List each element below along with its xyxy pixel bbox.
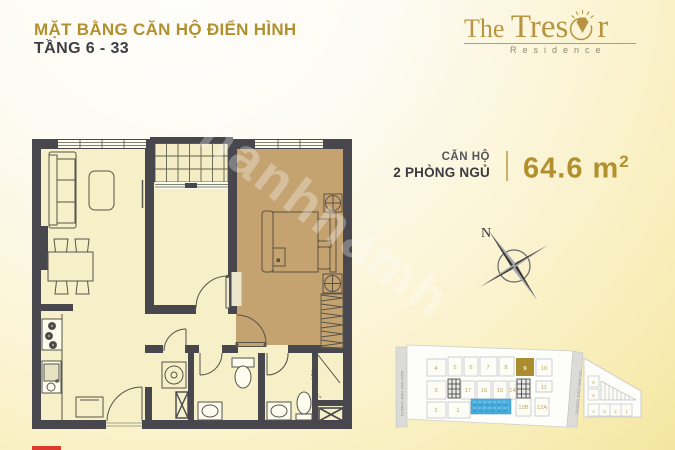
- svg-text:7: 7: [486, 365, 489, 371]
- svg-text:16: 16: [481, 388, 487, 394]
- svg-text:2: 2: [434, 408, 437, 414]
- svg-text:15: 15: [497, 388, 503, 394]
- svg-text:12A: 12A: [537, 405, 547, 411]
- svg-text:N: N: [481, 226, 491, 241]
- svg-text:3: 3: [434, 388, 437, 394]
- svg-text:8: 8: [504, 365, 507, 371]
- svg-text:10: 10: [541, 366, 547, 372]
- svg-text:5: 5: [453, 365, 456, 371]
- svg-text:DUONG BEN VAN DON: DUONG BEN VAN DON: [401, 370, 405, 416]
- svg-text:12B: 12B: [518, 405, 528, 411]
- svg-text:11: 11: [541, 385, 547, 391]
- svg-text:1: 1: [456, 408, 459, 414]
- svg-text:14: 14: [509, 388, 516, 394]
- svg-text:17: 17: [465, 388, 471, 394]
- svg-text:6: 6: [469, 365, 472, 371]
